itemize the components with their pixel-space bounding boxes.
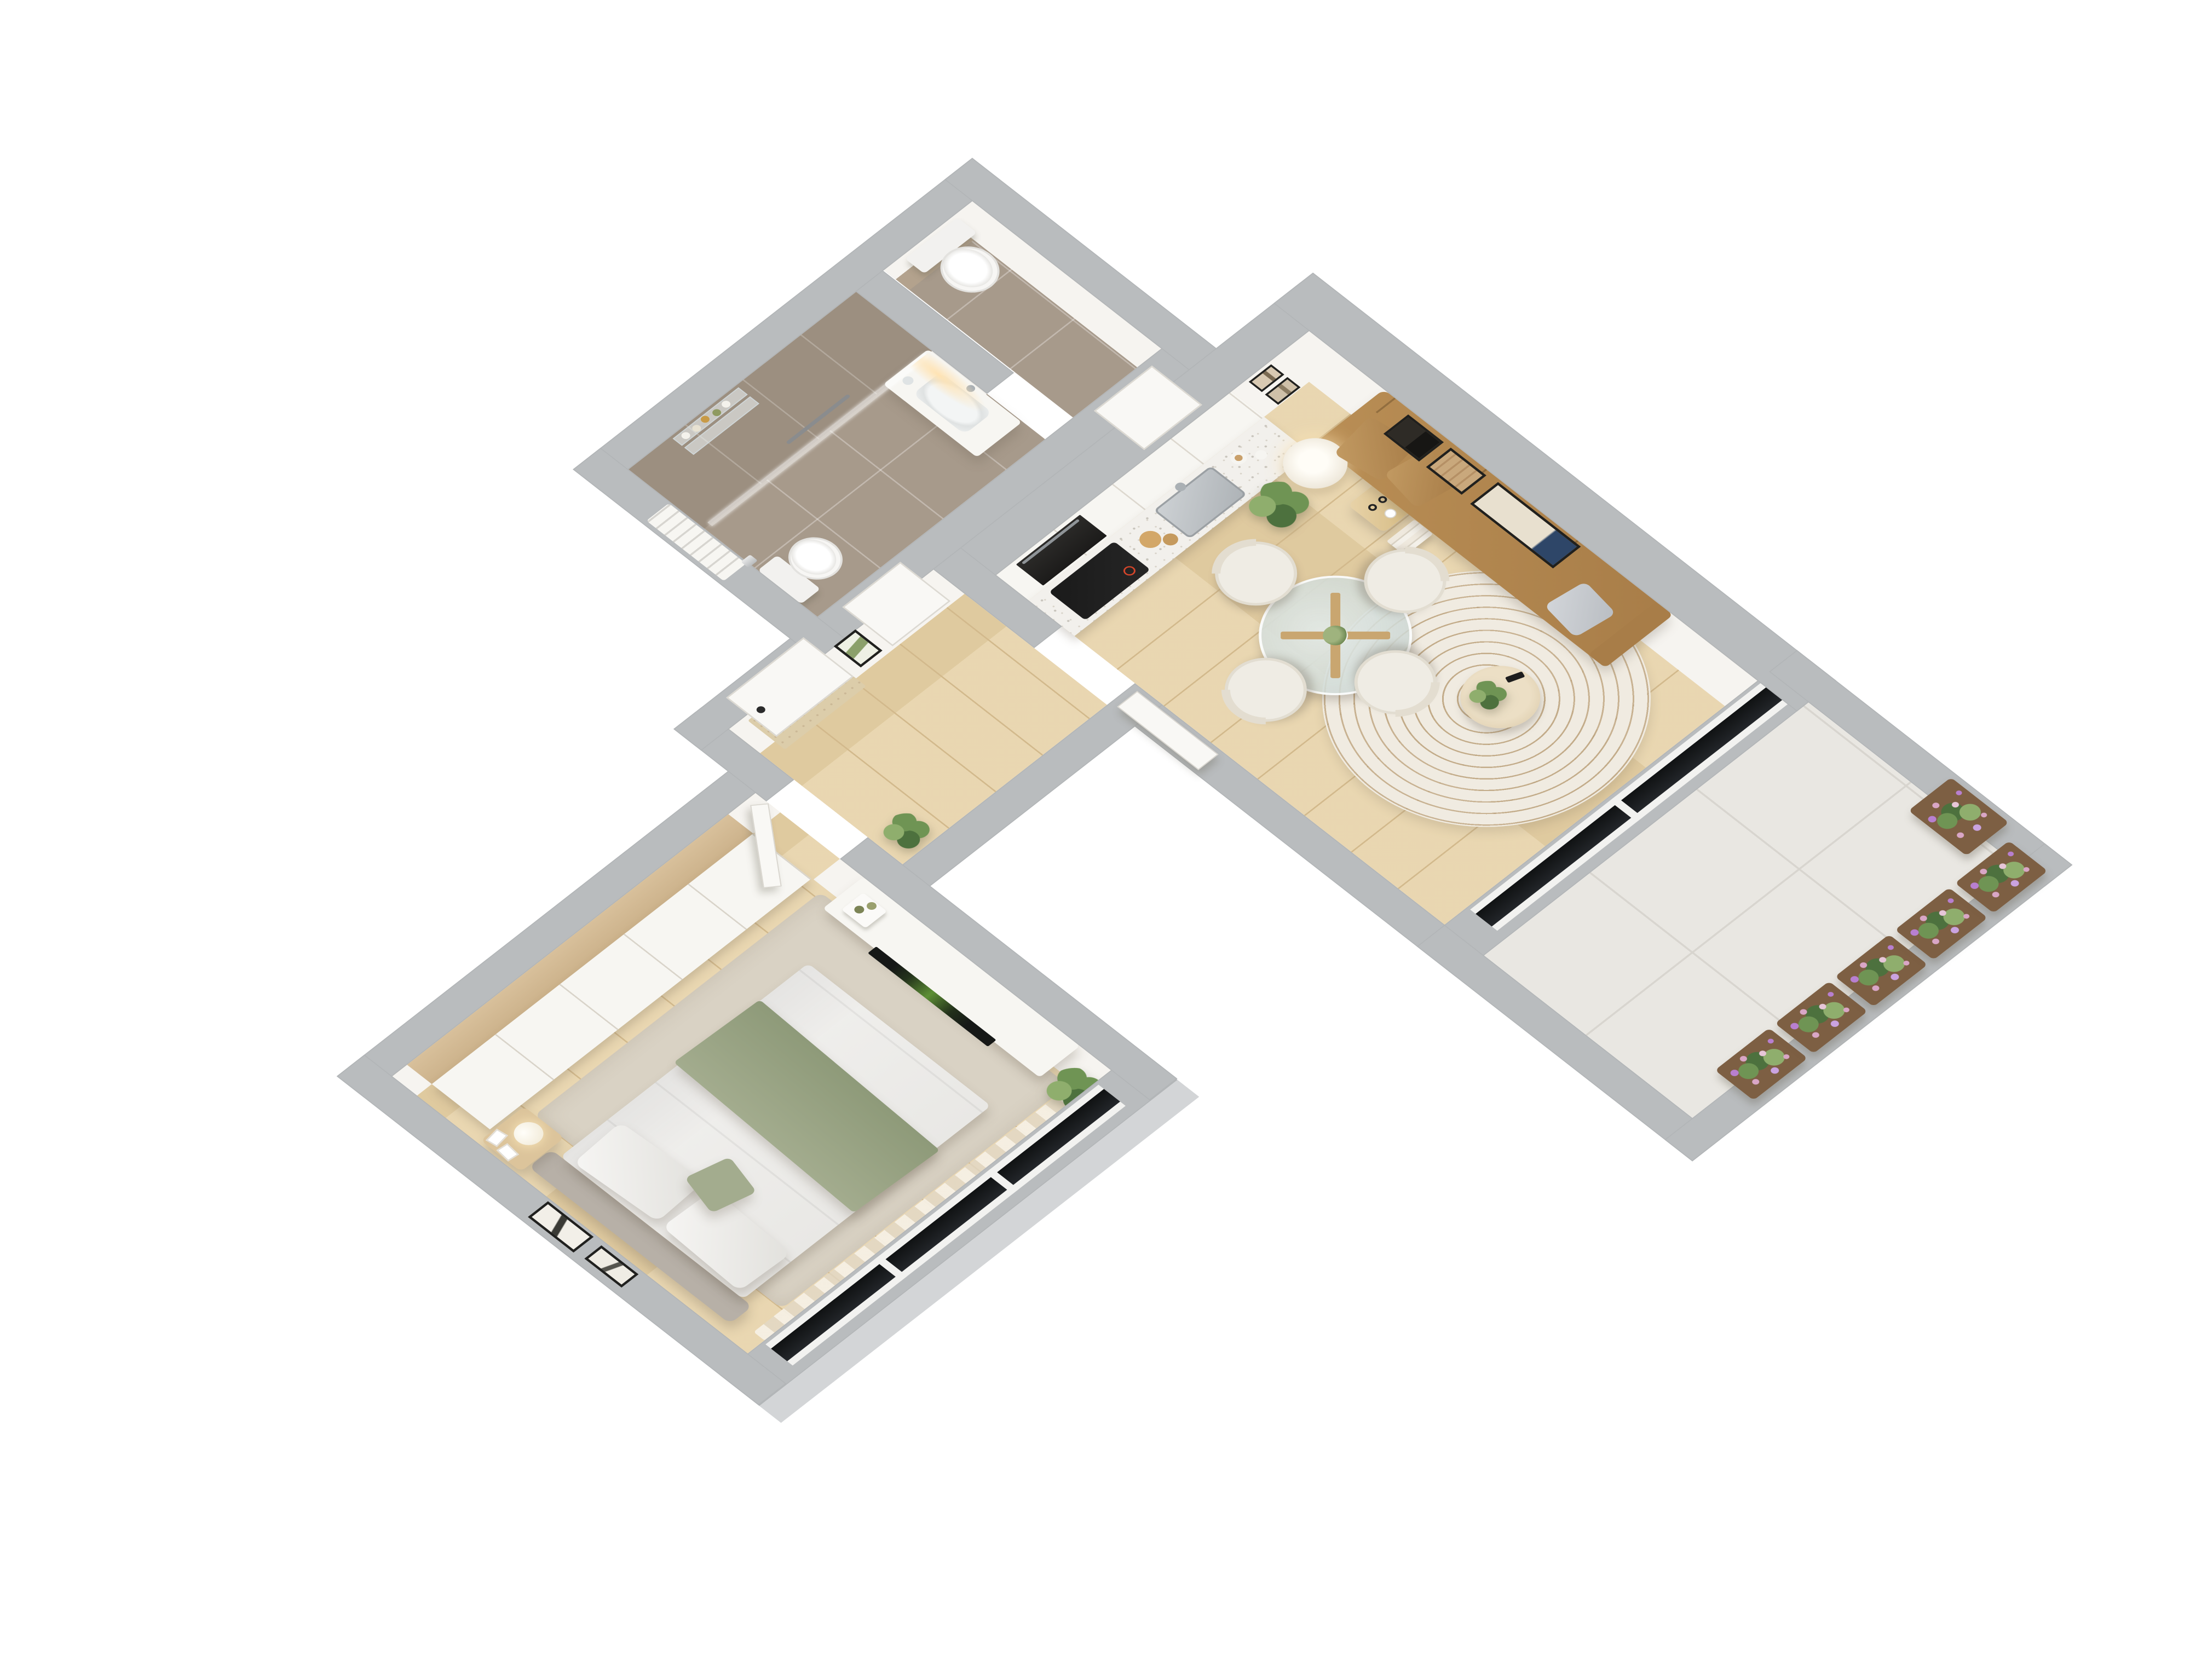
page: { "scene": { "type": "3d-floorplan-cutaw… — [0, 0, 2190, 1642]
apartment-floorplan — [11, 50, 2102, 1680]
door-handle[interactable] — [754, 705, 767, 715]
hob-indicator — [1121, 564, 1138, 578]
table-vase — [1318, 621, 1353, 649]
